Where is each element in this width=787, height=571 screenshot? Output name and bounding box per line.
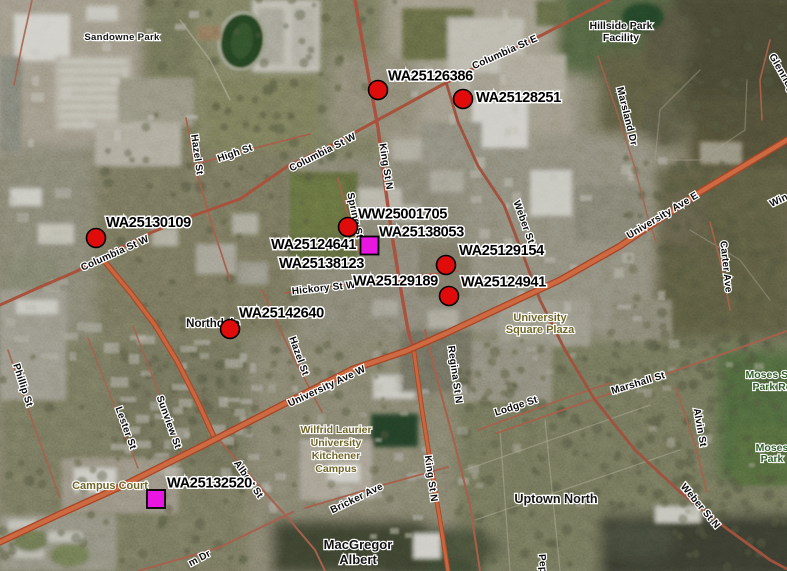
svg-text:WA25124641: WA25124641 (271, 237, 356, 253)
svg-text:WA25138123: WA25138123 (279, 256, 364, 272)
svg-text:Campus: Campus (315, 463, 357, 475)
svg-text:University: University (513, 312, 567, 324)
svg-text:Moses Sp: Moses Sp (745, 369, 787, 381)
svg-text:WW25001705: WW25001705 (358, 207, 447, 223)
svg-text:WA25142640: WA25142640 (239, 306, 324, 322)
svg-text:Sandowne Park: Sandowne Park (84, 32, 160, 43)
svg-text:WA25124941: WA25124941 (461, 275, 546, 291)
svg-text:Facility: Facility (603, 32, 639, 44)
svg-text:Wilfrid Laurier: Wilfrid Laurier (300, 424, 371, 436)
svg-text:WA25132520: WA25132520 (167, 476, 252, 492)
svg-text:WA25138053: WA25138053 (379, 225, 464, 241)
svg-text:Uptown North: Uptown North (514, 492, 597, 506)
svg-text:WA25126386: WA25126386 (388, 69, 473, 85)
svg-text:Park Re: Park Re (752, 381, 787, 393)
svg-text:University: University (311, 437, 362, 449)
svg-text:WA25129154: WA25129154 (459, 243, 545, 259)
svg-text:Kitchener: Kitchener (312, 450, 360, 462)
svg-text:Albert: Albert (339, 552, 377, 567)
svg-text:WA25130109: WA25130109 (106, 215, 191, 231)
svg-text:Park: Park (761, 453, 784, 465)
svg-text:MacGregor: MacGregor (324, 537, 393, 552)
svg-text:WA25128251: WA25128251 (476, 90, 561, 106)
svg-text:Campus Court: Campus Court (72, 480, 148, 492)
svg-text:WA25129189: WA25129189 (353, 274, 438, 290)
svg-text:Hillside Park: Hillside Park (589, 20, 652, 32)
svg-text:Square Plaza: Square Plaza (506, 324, 575, 336)
